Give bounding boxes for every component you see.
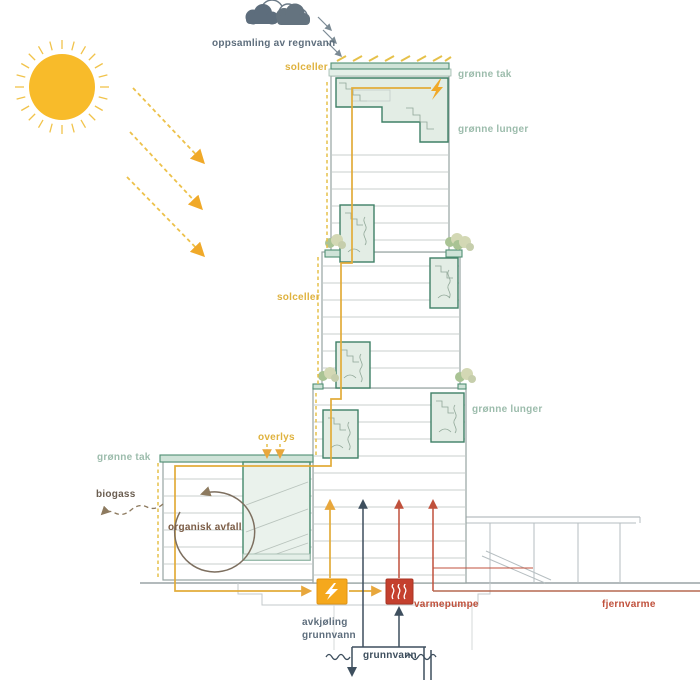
diagram-svg: oppsamling av regnvann solceller grønne … (0, 0, 700, 688)
electricity-box (317, 579, 347, 604)
ramp (482, 556, 545, 583)
label-rain-collection: oppsamling av regnvann (212, 38, 335, 49)
label-solar-cells-mid: solceller (277, 292, 320, 303)
basement-walls (334, 605, 472, 650)
label-green-roof-podium: grønne tak (97, 452, 151, 463)
green-lung-box (430, 258, 458, 308)
label-groundwater: grunnvann (363, 650, 417, 661)
sun-icon (15, 40, 109, 134)
green-lung-box (431, 393, 464, 442)
label-cooling-line2: grunnvann (302, 630, 356, 641)
green-lung-box (323, 410, 358, 458)
heat-pump-box (386, 579, 413, 604)
label-green-lungs-lower: grønne lunger (472, 404, 542, 415)
tower-green-roof (329, 63, 451, 76)
solar-radiation-arrows (127, 88, 203, 255)
rain-cloud-icon (246, 0, 311, 25)
sun-disc (29, 54, 95, 120)
podium-green-roof (160, 455, 313, 462)
podium-section (158, 455, 313, 580)
green-lung-box (340, 205, 374, 262)
label-cooling-line1: avkjøling (302, 617, 348, 628)
solar-panel-dashes (337, 56, 451, 61)
biogas-arrow (102, 504, 163, 514)
label-heat-pump: varmepumpe (414, 599, 479, 610)
label-organic-waste: organisk avfall (168, 522, 242, 533)
label-green-roof-tower: grønne tak (458, 69, 512, 80)
label-skylight: overlys (258, 432, 295, 443)
label-district-heating: fjernvarme (602, 599, 656, 610)
energy-concept-diagram: oppsamling av regnvann solceller grønne … (0, 0, 700, 688)
rain-arrows (318, 17, 341, 56)
tower-section (313, 56, 476, 583)
injection-well-arrow (347, 667, 357, 677)
label-solar-cells-top: solceller (285, 62, 328, 73)
label-green-lungs-upper: grønne lunger (458, 124, 528, 135)
canopy-structure (466, 517, 640, 583)
label-biogas: biogass (96, 489, 136, 500)
